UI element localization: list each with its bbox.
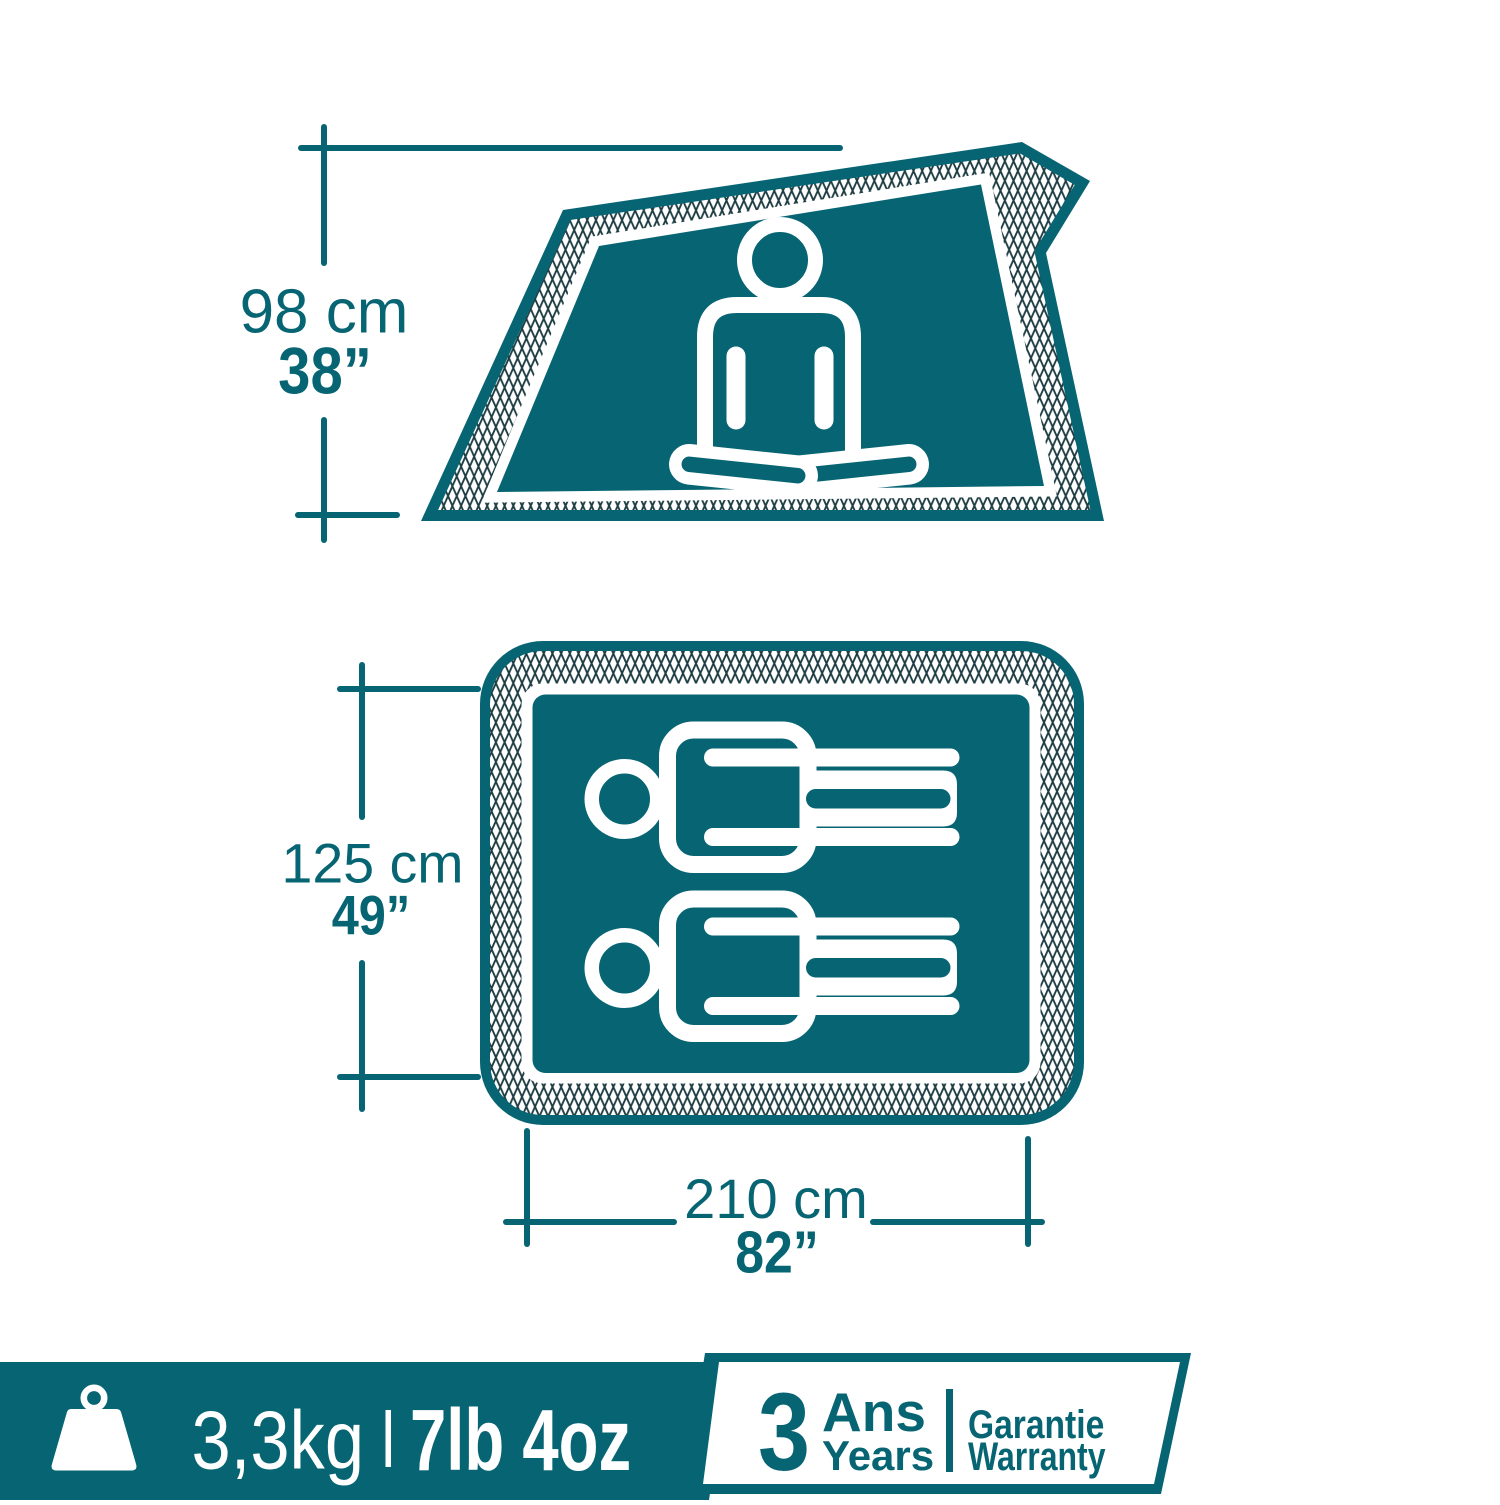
svg-text:7lb 4oz: 7lb 4oz xyxy=(410,1392,631,1489)
svg-text:3: 3 xyxy=(758,1371,810,1494)
svg-text:3,3kg: 3,3kg xyxy=(192,1395,365,1486)
svg-text:38”: 38” xyxy=(278,335,372,408)
svg-text:82”: 82” xyxy=(735,1219,818,1285)
svg-text:49”: 49” xyxy=(332,884,411,947)
svg-text:Warranty: Warranty xyxy=(968,1434,1106,1479)
svg-text:Years: Years xyxy=(822,1432,934,1479)
